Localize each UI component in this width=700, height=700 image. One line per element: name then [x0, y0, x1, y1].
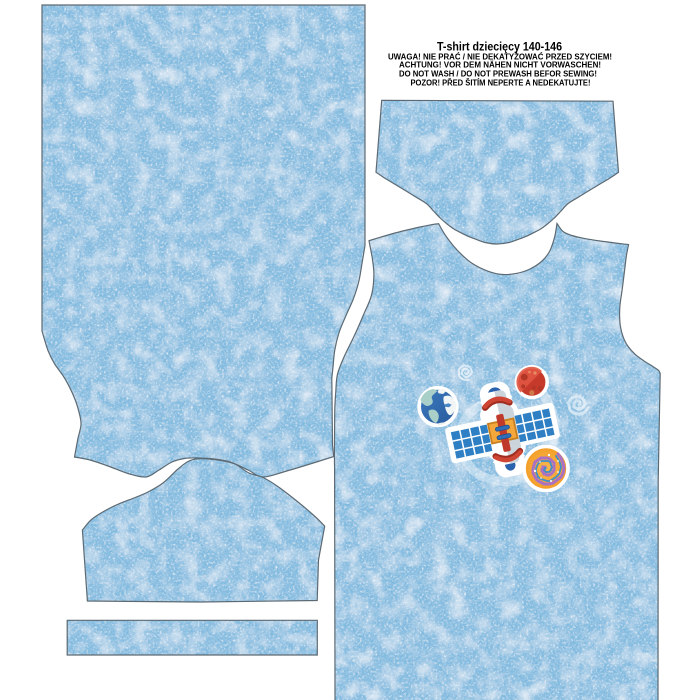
svg-text:DO NOT WASH / DO NOT PREWASH B: DO NOT WASH / DO NOT PREWASH BEFOR SEWIN… [399, 69, 597, 78]
svg-text:POZOR! PŘED ŠITÍM NEPERTE A NE: POZOR! PŘED ŠITÍM NEPERTE A NEDEKATUJTE! [411, 78, 591, 87]
svg-text:ACHTUNG! VOR DEM NÄHEN NICHT V: ACHTUNG! VOR DEM NÄHEN NICHT VORWASCHEN! [399, 61, 601, 70]
